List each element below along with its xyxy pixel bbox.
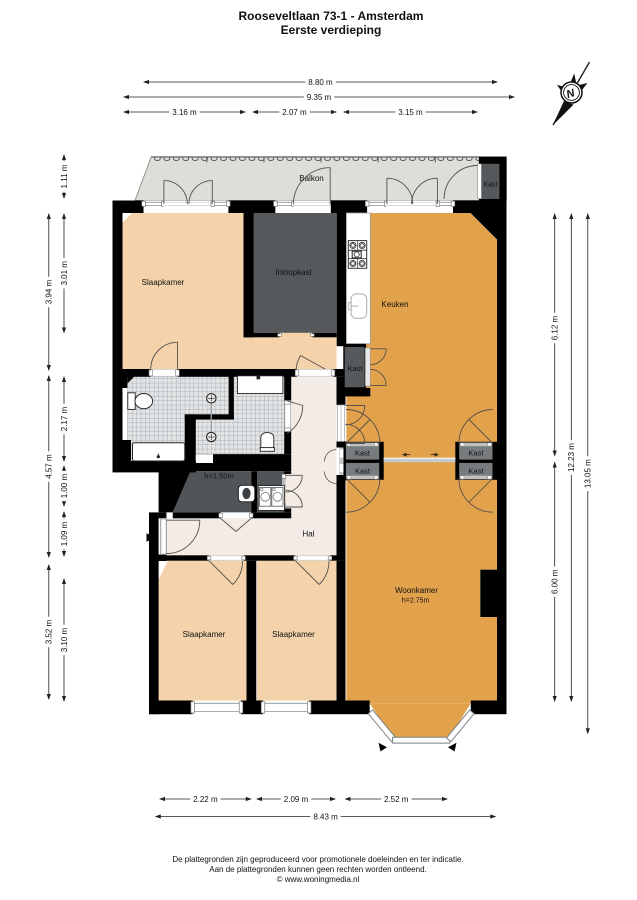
- svg-text:3.94 m: 3.94 m: [45, 279, 54, 304]
- svg-text:12.23 m: 12.23 m: [567, 443, 576, 472]
- svg-text:3.52 m: 3.52 m: [45, 619, 54, 644]
- svg-text:6.12 m: 6.12 m: [551, 315, 560, 340]
- svg-text:Kast: Kast: [468, 467, 484, 476]
- svg-text:3.10 m: 3.10 m: [60, 627, 69, 652]
- svg-text:Slaapkamer: Slaapkamer: [142, 278, 185, 287]
- svg-text:1.00 m: 1.00 m: [60, 473, 69, 498]
- svg-text:Kast: Kast: [347, 364, 363, 373]
- svg-text:3.16 m: 3.16 m: [172, 108, 197, 117]
- svg-text:2.09 m: 2.09 m: [284, 795, 309, 804]
- svg-text:Slaapkamer: Slaapkamer: [272, 630, 315, 639]
- svg-text:h<1.50m: h<1.50m: [204, 472, 233, 481]
- svg-text:13.05 m: 13.05 m: [584, 459, 593, 488]
- svg-text:2.17 m: 2.17 m: [60, 406, 69, 431]
- svg-text:© www.woningmedia.nl: © www.woningmedia.nl: [277, 875, 360, 884]
- svg-text:1.09 m: 1.09 m: [60, 521, 69, 546]
- svg-text:8.80 m: 8.80 m: [308, 78, 333, 87]
- svg-text:3.01 m: 3.01 m: [60, 261, 69, 286]
- svg-text:8.43 m: 8.43 m: [313, 812, 338, 821]
- svg-text:Kast: Kast: [355, 467, 371, 476]
- svg-text:3.15 m: 3.15 m: [398, 108, 423, 117]
- svg-text:Rooseveltlaan 73-1 - Amsterdam: Rooseveltlaan 73-1 - Amsterdam: [239, 9, 424, 23]
- svg-text:Hal: Hal: [302, 530, 314, 539]
- svg-text:Inloopkast: Inloopkast: [275, 268, 312, 277]
- svg-text:Balkon: Balkon: [299, 174, 323, 183]
- svg-text:2.22 m: 2.22 m: [193, 795, 218, 804]
- svg-text:Slaapkamer: Slaapkamer: [183, 630, 226, 639]
- svg-text:4.57 m: 4.57 m: [45, 454, 54, 479]
- svg-text:2.07 m: 2.07 m: [282, 108, 307, 117]
- svg-text:6.00 m: 6.00 m: [551, 569, 560, 594]
- svg-text:Kast: Kast: [355, 448, 371, 457]
- svg-text:De plattegronden zijn geproduc: De plattegronden zijn geproduceerd voor …: [172, 855, 463, 864]
- svg-text:Aan de plattegronden kunnen ge: Aan de plattegronden kunnen geen rechten…: [209, 865, 427, 874]
- svg-text:Kast: Kast: [483, 182, 497, 189]
- svg-text:1.11 m: 1.11 m: [60, 164, 69, 188]
- svg-text:2.52 m: 2.52 m: [384, 795, 409, 804]
- svg-text:Woonkamer: Woonkamer: [395, 586, 438, 595]
- svg-text:Kast: Kast: [468, 448, 484, 457]
- svg-text:9.35 m: 9.35 m: [307, 93, 332, 102]
- svg-text:h=2.75m: h=2.75m: [402, 597, 430, 604]
- svg-text:Eerste verdieping: Eerste verdieping: [281, 23, 382, 37]
- svg-text:Keuken: Keuken: [381, 300, 408, 309]
